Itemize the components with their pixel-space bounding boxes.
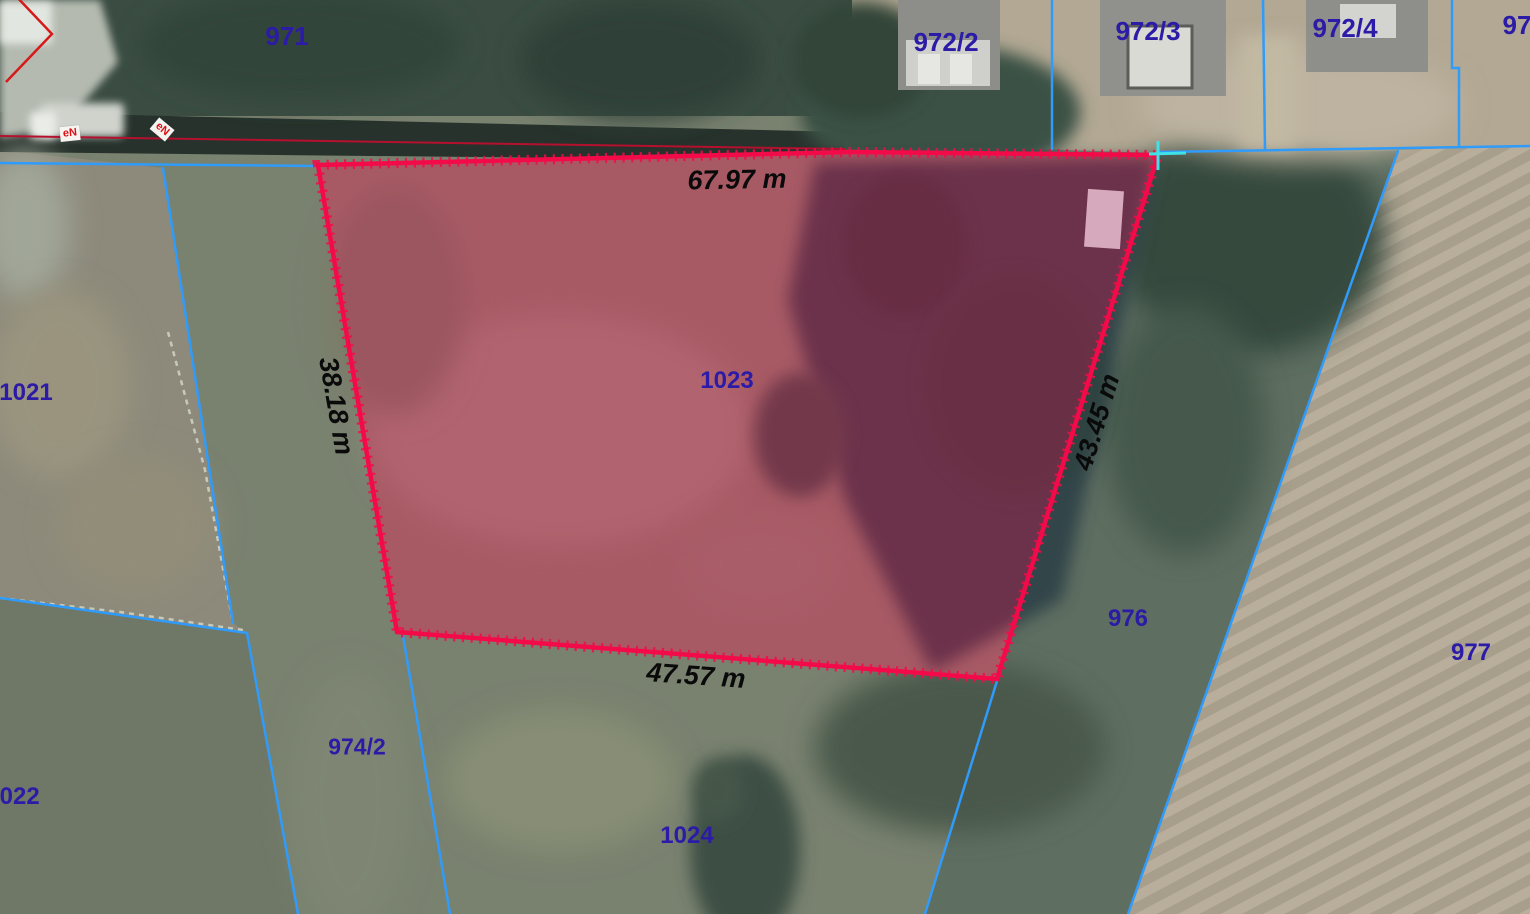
parcel-label-972-2: 972/2 [913,29,978,55]
dimension-label-bottom: 47.57 m [646,659,747,693]
parcel-label-974-2: 974/2 [328,736,386,759]
building-footprint [1084,189,1124,249]
parcel-label-972-3: 972/3 [1115,18,1180,44]
parcel-label-1023: 1023 [700,369,753,393]
parcel-label-972-4: 972/4 [1312,15,1377,41]
parcel-label-1022: 1022 [0,785,40,809]
parcel-label-1021: 1021 [0,381,53,405]
parcel-label-1024: 1024 [660,824,713,848]
dimension-label-top: 67.97 m [687,166,787,195]
parcel-label-976: 976 [1108,607,1148,631]
parcel-label-971: 971 [265,23,308,49]
parcel-label-97x: 97 [1503,12,1530,38]
satellite-imagery [0,0,1530,914]
parcel-label-977: 977 [1451,641,1491,665]
utility-marker-en-1: eN [59,125,81,142]
map-viewport[interactable]: 971 972/2 972/3 972/4 97 1021 1022 974/2… [0,0,1530,914]
